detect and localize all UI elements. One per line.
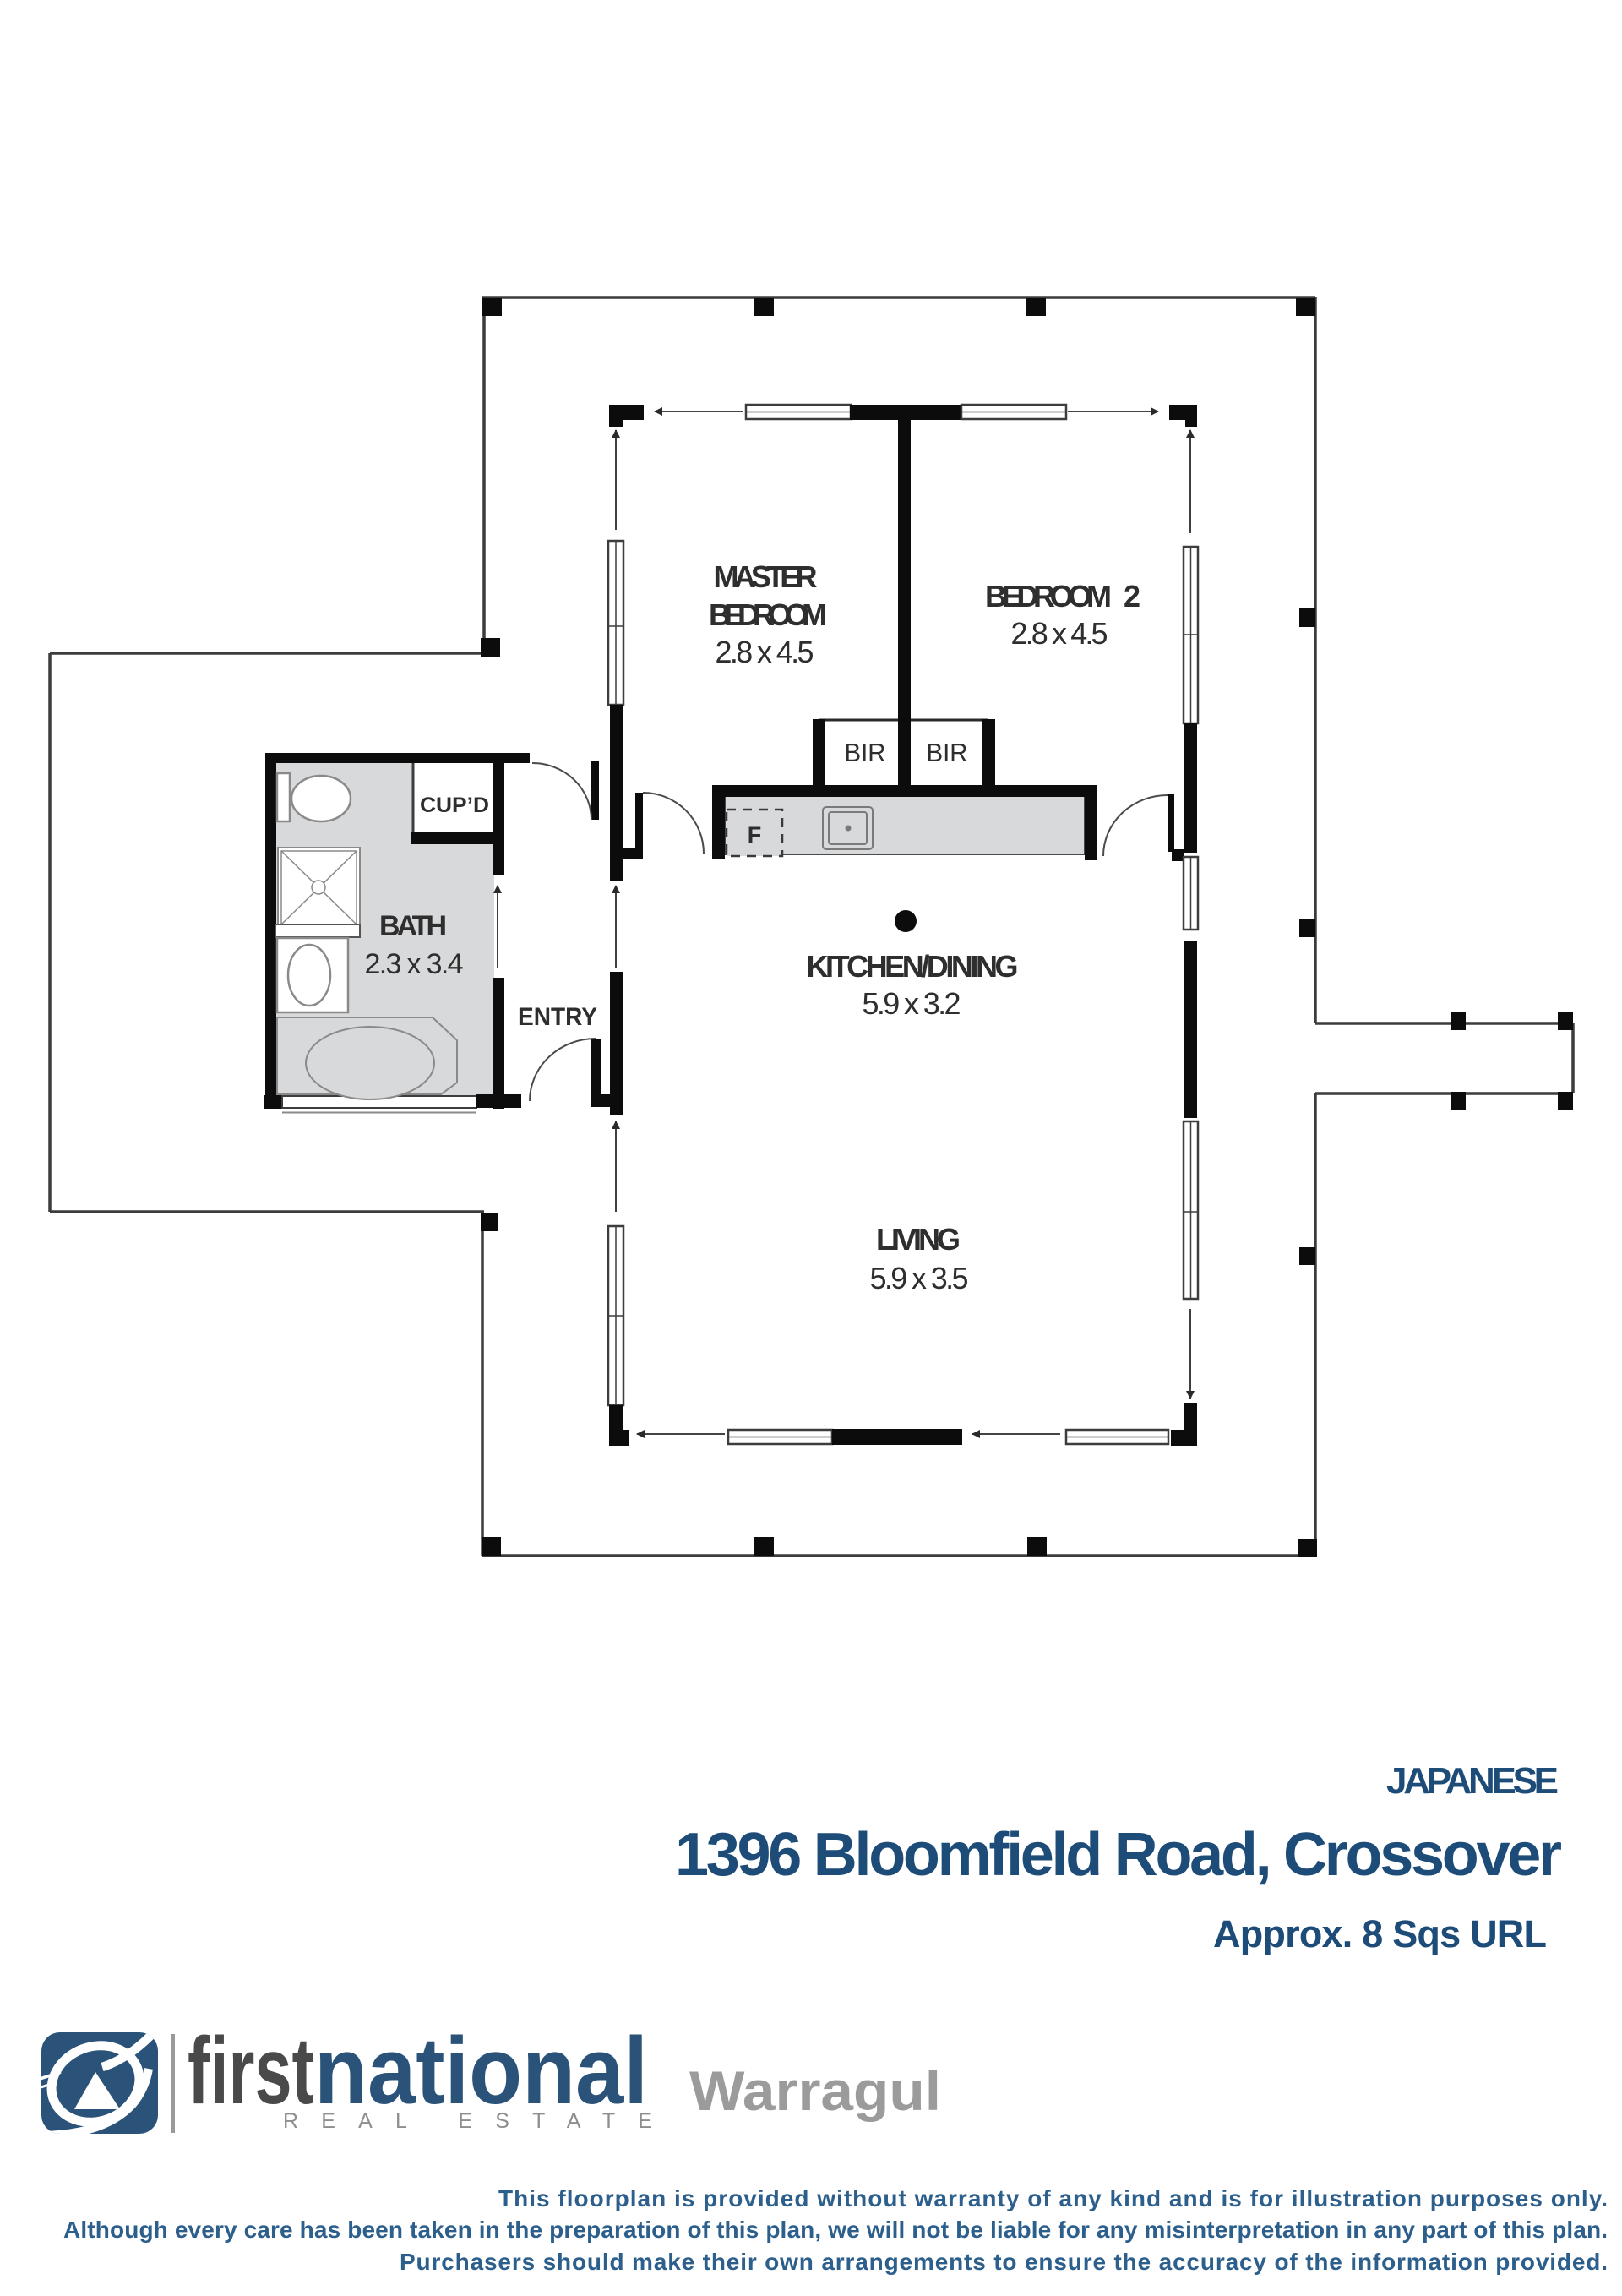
svg-text:BEDROOM: BEDROOM bbox=[985, 579, 1112, 614]
svg-text:Although every care has been t: Although every care has been taken in th… bbox=[63, 2217, 1608, 2243]
svg-text:BIR: BIR bbox=[845, 738, 886, 767]
svg-text:This floorplan is provided wit: This floorplan is provided without warra… bbox=[498, 2185, 1608, 2211]
svg-text:5.9 x 3.2: 5.9 x 3.2 bbox=[863, 986, 961, 1021]
svg-text:BATH: BATH bbox=[379, 910, 447, 942]
svg-text:BIR: BIR bbox=[927, 738, 968, 767]
svg-text:2.8 x 4.5: 2.8 x 4.5 bbox=[716, 635, 814, 669]
svg-text:Purchasers should make their o: Purchasers should make their own arrange… bbox=[400, 2249, 1608, 2275]
svg-text:2: 2 bbox=[1124, 579, 1140, 614]
svg-text:first: first bbox=[188, 2018, 314, 2124]
svg-text:BEDROOM: BEDROOM bbox=[709, 597, 827, 632]
svg-text:national: national bbox=[314, 2018, 648, 2124]
svg-text:Warragul: Warragul bbox=[689, 2059, 941, 2122]
svg-text:CUP’D: CUP’D bbox=[420, 794, 489, 817]
svg-text:Approx. 8 Sqs URL: Approx. 8 Sqs URL bbox=[1213, 1912, 1547, 1955]
svg-text:JAPANESE: JAPANESE bbox=[1386, 1760, 1559, 1802]
svg-text:1396 Bloomfield Road, Crossove: 1396 Bloomfield Road, Crossover bbox=[675, 1821, 1562, 1889]
svg-text:LIVING: LIVING bbox=[876, 1222, 961, 1257]
svg-text:2.8 x 4.5: 2.8 x 4.5 bbox=[1011, 616, 1108, 651]
svg-text:KITCHEN/DINING: KITCHEN/DINING bbox=[807, 949, 1019, 984]
svg-text:F: F bbox=[748, 822, 762, 848]
svg-text:2.3 x 3.4: 2.3 x 3.4 bbox=[365, 948, 464, 980]
svg-text:5.9 x 3.5: 5.9 x 3.5 bbox=[870, 1261, 969, 1295]
svg-text:MASTER: MASTER bbox=[714, 559, 818, 594]
svg-text:ENTRY: ENTRY bbox=[518, 1003, 597, 1031]
